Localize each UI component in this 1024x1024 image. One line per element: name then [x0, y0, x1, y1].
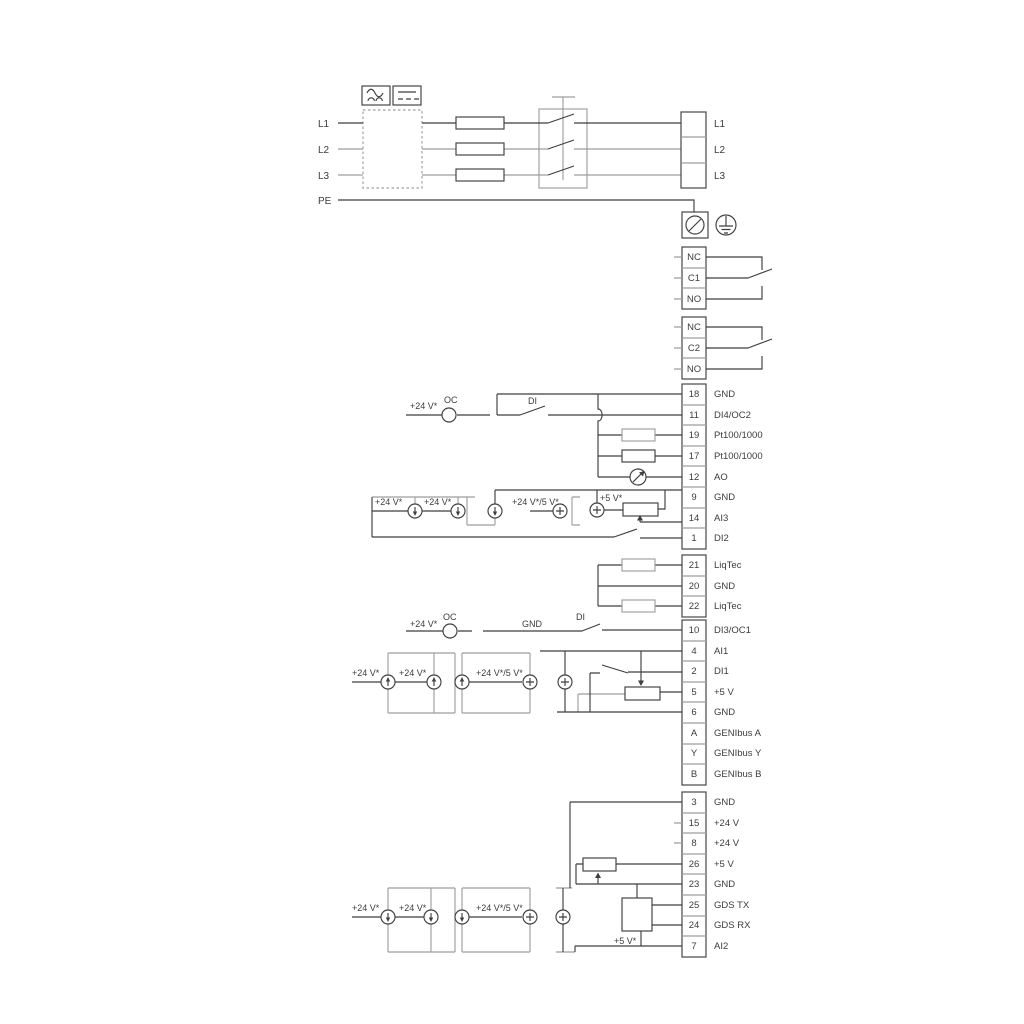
- analog-output-meter-icon: [598, 469, 682, 485]
- liqtec-section: 21 LiqTec 20 GND 22 LiqTec: [598, 555, 742, 617]
- terminal-label: AI1: [714, 646, 728, 657]
- terminal-number: B: [691, 769, 697, 780]
- plus24-label: +24 V*: [375, 497, 403, 507]
- pt100-resistor-icon: [622, 429, 655, 441]
- terminal-number: 23: [689, 879, 700, 890]
- relay-terminal-stubs: [674, 257, 682, 369]
- terminal-label: GND: [714, 707, 735, 718]
- potentiometer-icon: [623, 503, 658, 516]
- screw-terminal-icon: [682, 212, 708, 238]
- oc-label: OC: [444, 395, 458, 405]
- terminal-label: AO: [714, 472, 728, 483]
- voltage-source-icon: [523, 910, 570, 924]
- terminal-number: 5: [691, 687, 696, 698]
- gds-sensor-box: [622, 898, 652, 931]
- terminal-label: GND: [714, 389, 735, 400]
- terminal-number: 9: [691, 492, 696, 503]
- potentiometer-icon: [625, 687, 660, 700]
- terminal-label: DI1: [714, 666, 729, 677]
- terminal-number: 24: [689, 920, 700, 931]
- terminal-label: +5 V: [714, 859, 734, 870]
- pt100-resistor-icon: [622, 450, 655, 462]
- plus24-label: +24 V*: [399, 668, 427, 678]
- input-label-l1: L1: [318, 119, 330, 130]
- terminal-label: GND: [714, 492, 735, 503]
- io-block-c-section: 10 DI3/OC1 4 AI1 2 DI1 5 +5 V 6 GND A GE…: [352, 612, 762, 785]
- relay2-contact-icon: [706, 327, 772, 369]
- ai3-di2-circuit: +24 V* +24 V* +24 V*/5 V* +5 V*: [372, 490, 682, 538]
- terminal-number: 1: [691, 533, 696, 544]
- input-label-pe: PE: [318, 196, 332, 207]
- relay2-c2: C2: [688, 343, 700, 354]
- terminal-label: GND: [714, 581, 735, 592]
- ai1-di1-circuit: +24 V* +24 V* +24 V*/5 V*: [352, 651, 682, 713]
- liqtec-sensor-icon: [622, 559, 655, 571]
- fuse-l1-icon: [456, 117, 504, 129]
- plus24-5-label: +24 V*/5 V*: [512, 497, 559, 507]
- terminal-number: Y: [691, 748, 698, 759]
- plus24-label: +24 V*: [410, 619, 438, 629]
- input-label-l2: L2: [318, 145, 330, 156]
- terminal-label: Pt100/1000: [714, 451, 763, 462]
- terminal-number: 15: [689, 818, 700, 829]
- terminal-label: GDS TX: [714, 900, 750, 911]
- terminal-number: 12: [689, 472, 700, 483]
- plus24-label: +24 V*: [399, 903, 427, 913]
- oc-label: OC: [443, 612, 457, 622]
- relay1-c1: C1: [688, 273, 700, 284]
- terminal-label: GND: [714, 879, 735, 890]
- terminal-label: DI4/OC2: [714, 410, 751, 421]
- wire-pe: [338, 200, 694, 212]
- open-collector-icon: [442, 408, 456, 422]
- terminal-number: 22: [689, 601, 700, 612]
- protective-earth-icon: [716, 215, 736, 235]
- terminal-label: DI2: [714, 533, 729, 544]
- terminal-number: 26: [689, 859, 700, 870]
- terminal-number: 3: [691, 797, 696, 808]
- terminal-label: DI3/OC1: [714, 625, 751, 636]
- terminal-label: LiqTec: [714, 560, 742, 571]
- dc-symbol-box: [393, 86, 421, 105]
- terminal-label: Pt100/1000: [714, 430, 763, 441]
- relay1-nc: NC: [687, 252, 701, 263]
- power-input-section: L1 L2 L3 PE: [318, 86, 736, 238]
- terminal-number: 6: [691, 707, 696, 718]
- plus5-label: +5 V*: [600, 493, 623, 503]
- terminal-label: LiqTec: [714, 601, 742, 612]
- terminal-number: 10: [689, 625, 700, 636]
- plus5-label: +5 V*: [614, 936, 637, 946]
- plus24-5-label: +24 V*/5 V*: [476, 668, 523, 678]
- liqtec-sensor-icon: [622, 600, 655, 612]
- fuse-l3-icon: [456, 169, 504, 181]
- terminal-number: 25: [689, 900, 700, 911]
- terminal-number: 19: [689, 430, 700, 441]
- plus24-label: +24 V*: [352, 668, 380, 678]
- plus24-label: +24 V*: [410, 401, 438, 411]
- terminal-label: AI2: [714, 941, 728, 952]
- terminal-label: GENIbus A: [714, 728, 762, 739]
- terminal-number: 2: [691, 666, 696, 677]
- voltage-source-icon: [553, 503, 604, 518]
- terminal-label: AI3: [714, 513, 728, 524]
- terminal-number: 21: [689, 560, 700, 571]
- relay2-no: NO: [687, 364, 701, 375]
- ac-symbol-box: [362, 86, 390, 105]
- potentiometer-icon: [583, 858, 616, 871]
- relay2-nc: NC: [687, 322, 701, 333]
- terminal-number: A: [691, 728, 698, 739]
- wiper-arrow-icon: [595, 873, 601, 879]
- input-label-l3: L3: [318, 171, 330, 182]
- di-label: DI: [576, 612, 585, 622]
- terminal-stubs: [674, 823, 682, 843]
- terminal-number: 4: [691, 646, 696, 657]
- plus24-label: +24 V*: [352, 903, 380, 913]
- relay-output-section: NC C1 NO NC C2 NO: [674, 247, 772, 379]
- ai2-gds-circuit: +24 V* +24 V* +24 V*/5 V* +5 V*: [352, 802, 682, 952]
- terminal-number: 18: [689, 389, 700, 400]
- open-collector-icon: [443, 624, 457, 638]
- terminal-number: 8: [691, 838, 696, 849]
- terminal-number: 11: [689, 410, 699, 421]
- fuse-l2-icon: [456, 143, 504, 155]
- terminal-label: +24 V: [714, 818, 740, 829]
- relay1-terminal-block: NC C1 NO: [682, 247, 706, 309]
- current-source-icon: [408, 504, 502, 518]
- di3-oc1-circuit: +24 V* OC GND DI: [406, 612, 682, 638]
- output-label-l2: L2: [714, 145, 726, 156]
- rfi-filter-box: [363, 110, 422, 188]
- relay1-no: NO: [687, 294, 701, 305]
- terminal-number: 7: [691, 941, 696, 952]
- plus24-label: +24 V*: [424, 497, 452, 507]
- pump-wiring-diagram: L1 L2 L3 PE: [0, 0, 1024, 1024]
- wiring-diagram-page: L1 L2 L3 PE: [0, 0, 1024, 1024]
- plus24-5-label: +24 V*/5 V*: [476, 903, 523, 913]
- terminal-number: 17: [689, 451, 700, 462]
- relay1-contact-icon: [706, 257, 772, 299]
- terminal-label: GDS RX: [714, 920, 751, 931]
- output-label-l3: L3: [714, 171, 726, 182]
- terminal-label: GENIbus B: [714, 769, 762, 780]
- io-block-a-section: 18 GND 11 DI4/OC2 19 Pt100/1000 17 Pt100…: [372, 384, 763, 549]
- terminal-label: +5 V: [714, 687, 734, 698]
- wiper-arrow-icon: [638, 681, 644, 687]
- terminal-number: 20: [689, 581, 700, 592]
- io-block-d-section: 3 GND 15 +24 V 8 +24 V 26 +5 V 23 GND 25…: [352, 792, 751, 957]
- terminal-label: GENIbus Y: [714, 748, 762, 759]
- output-label-l1: L1: [714, 119, 726, 130]
- gnd-label: GND: [522, 619, 543, 629]
- main-switch: [539, 97, 587, 188]
- relay2-terminal-block: NC C2 NO: [682, 317, 706, 379]
- terminal-label: GND: [714, 797, 735, 808]
- voltage-source-icon: [523, 675, 572, 689]
- power-terminal-block: L1 L2 L3: [681, 112, 726, 188]
- di-label: DI: [528, 396, 537, 406]
- terminal-number: 14: [689, 513, 700, 524]
- terminal-label: +24 V: [714, 838, 740, 849]
